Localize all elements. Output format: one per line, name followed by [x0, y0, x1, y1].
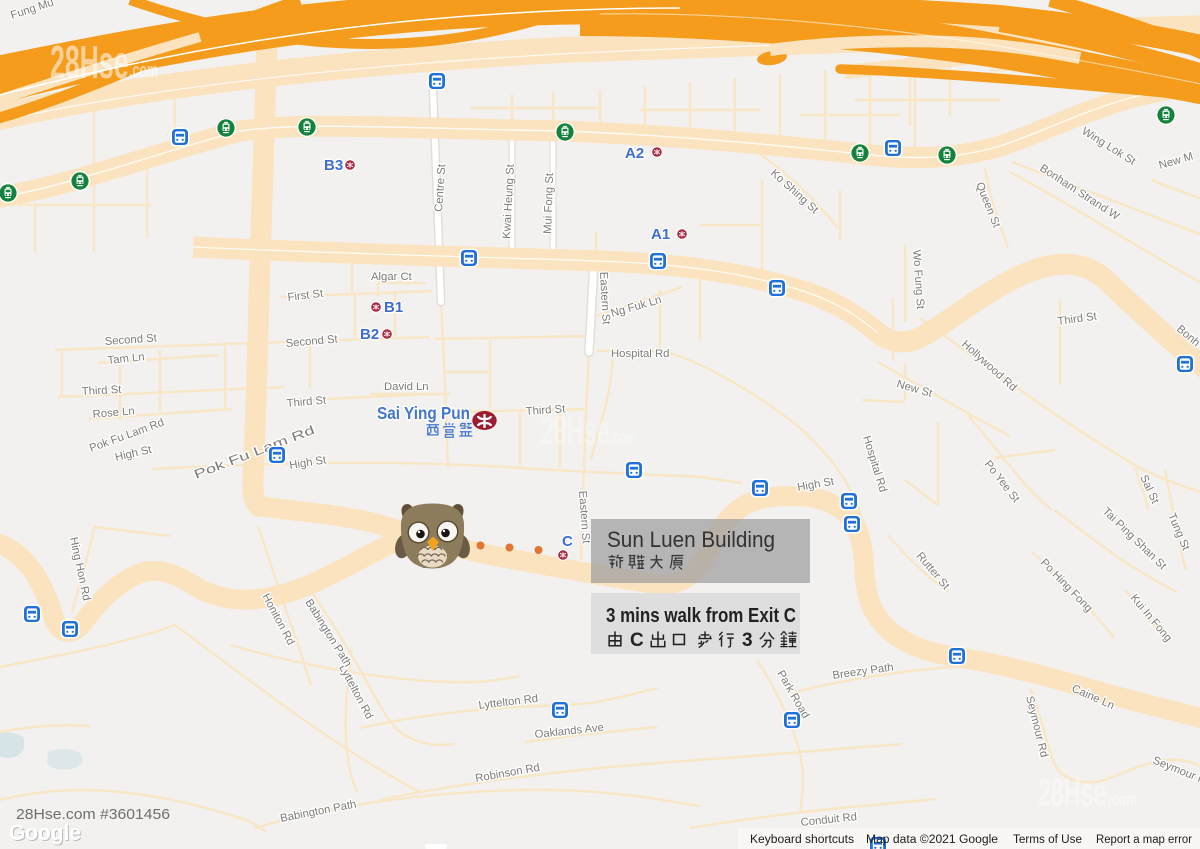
svg-text:28Hse: 28Hse [50, 36, 129, 87]
svg-text:28Hse: 28Hse [541, 407, 609, 452]
svg-text:Sai Ying Pun: Sai Ying Pun [377, 403, 470, 423]
svg-text:Google: Google [9, 820, 81, 845]
svg-text:A2: A2 [625, 145, 644, 162]
svg-text:3 mins walk from Exit C: 3 mins walk from Exit C [606, 604, 796, 627]
svg-text:David Ln: David Ln [384, 381, 429, 393]
svg-text:Report a map error: Report a map error [1096, 834, 1192, 846]
svg-text:Map data ©2021 Google: Map data ©2021 Google [866, 834, 998, 846]
svg-text:3: 3 [742, 630, 753, 651]
svg-text:B1: B1 [384, 299, 403, 316]
svg-text:A1: A1 [651, 226, 670, 243]
svg-text:Keyboard shortcuts: Keyboard shortcuts [750, 834, 854, 846]
svg-text:C: C [562, 533, 573, 550]
svg-text:28Hse: 28Hse [1038, 769, 1106, 814]
svg-text:Third St: Third St [82, 384, 123, 398]
svg-text:Terms of Use: Terms of Use [1013, 834, 1082, 846]
svg-text:.com: .com [1108, 789, 1137, 810]
svg-text:Hospital Rd: Hospital Rd [611, 348, 669, 360]
svg-text:.com: .com [129, 59, 158, 82]
svg-text:B2: B2 [360, 326, 379, 343]
svg-text:B3: B3 [324, 157, 343, 174]
svg-text:C: C [630, 630, 644, 651]
svg-text:Sun Luen Building: Sun Luen Building [607, 527, 775, 552]
svg-text:Mui Fong St: Mui Fong St [542, 172, 556, 234]
svg-text:.com: .com [610, 427, 636, 447]
svg-text:Algar Ct: Algar Ct [371, 271, 413, 283]
